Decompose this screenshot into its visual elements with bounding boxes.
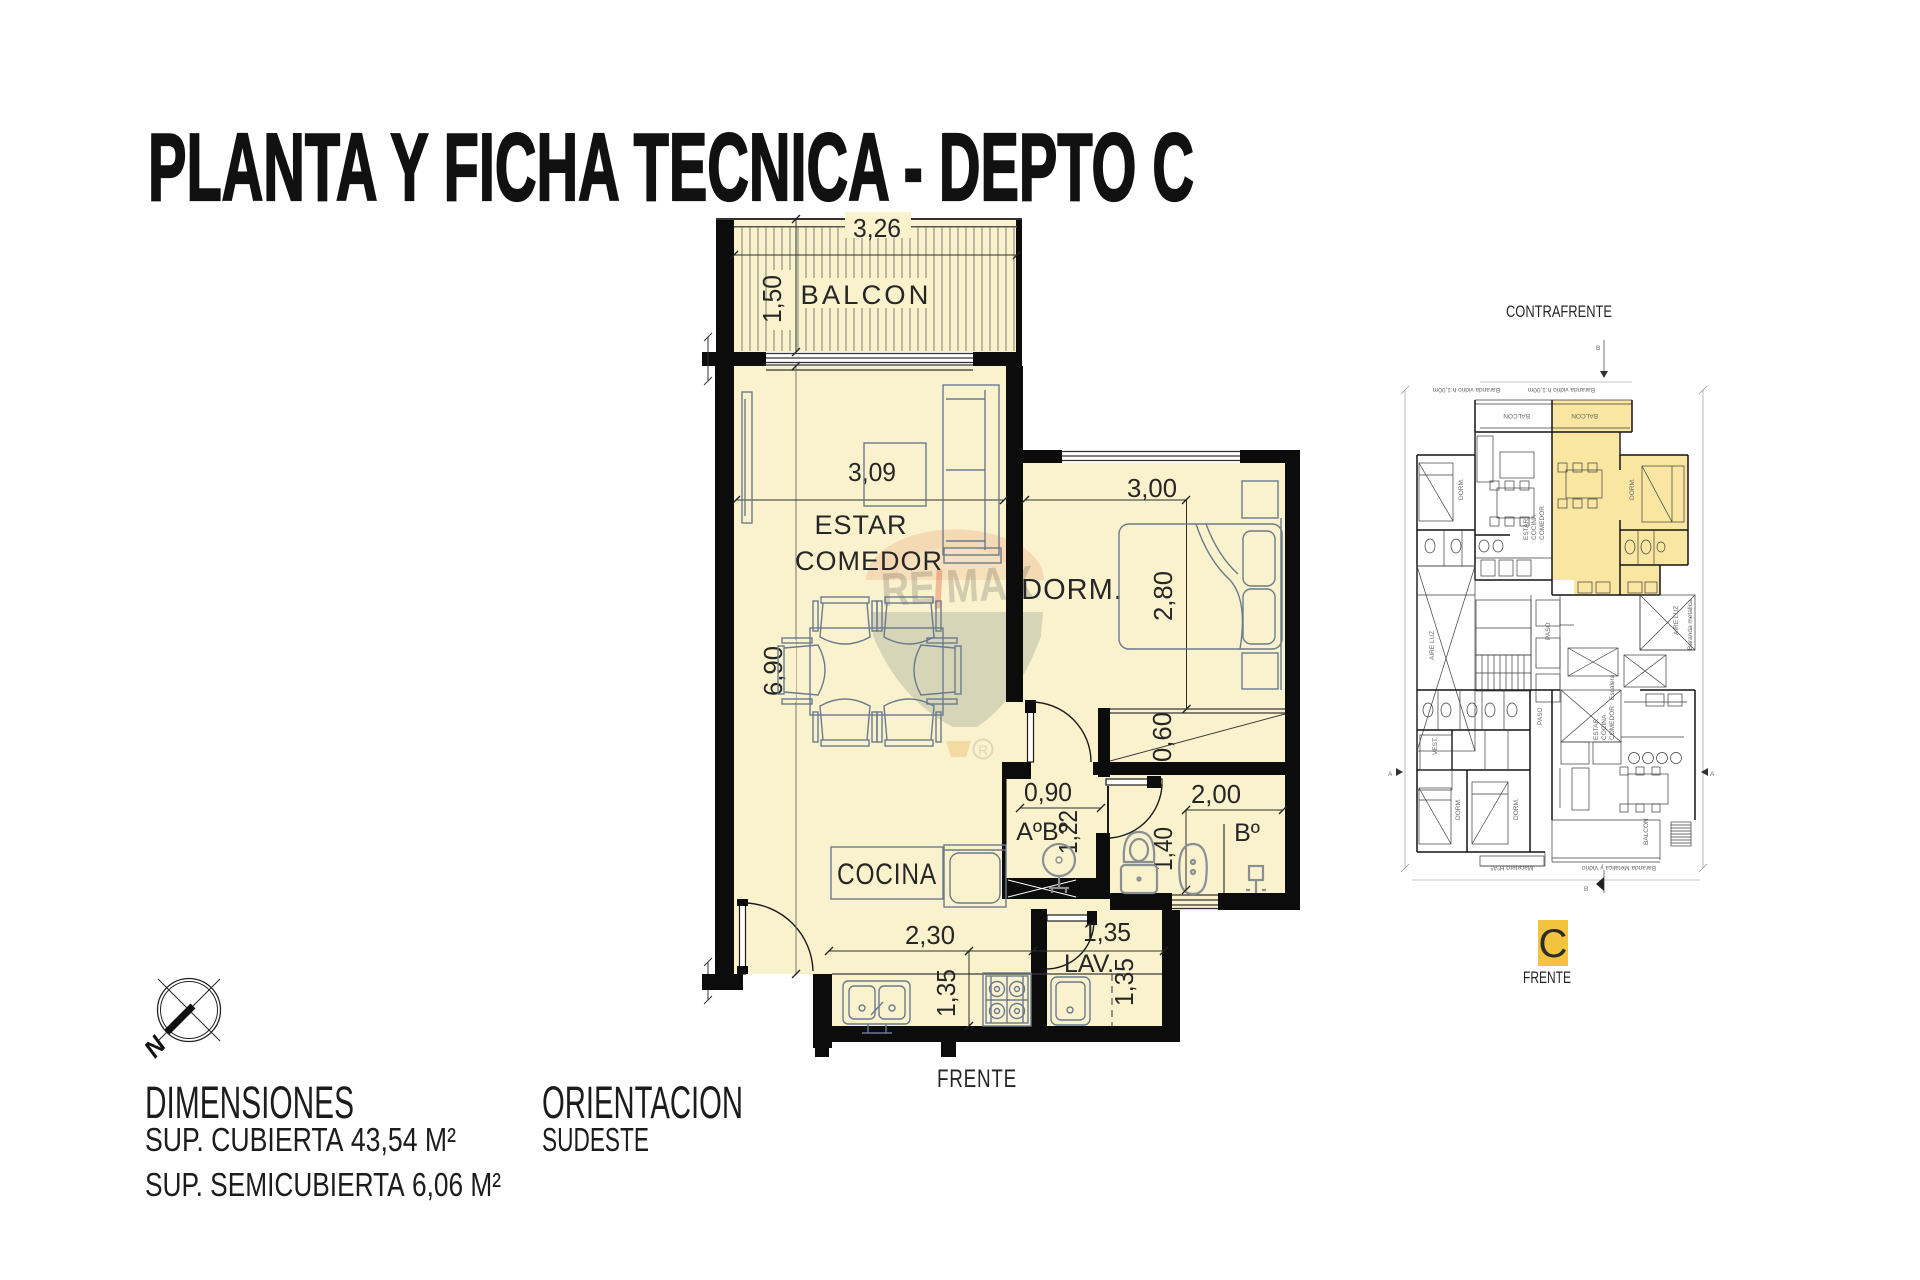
svg-text:COMEDOR: COMEDOR — [1609, 706, 1616, 740]
svg-text:2,00: 2,00 — [1191, 779, 1241, 809]
svg-text:AIRE LUZ: AIRE LUZ — [1673, 606, 1680, 635]
svg-text:SUP. CUBIERTA 43,54 M²: SUP. CUBIERTA 43,54 M² — [145, 1121, 456, 1158]
svg-text:0,90: 0,90 — [1024, 777, 1072, 807]
svg-text:Macetero HºAº: Macetero HºAº — [1490, 864, 1533, 871]
svg-text:3,09: 3,09 — [848, 457, 896, 487]
svg-text:A: A — [1388, 771, 1393, 778]
svg-text:2,80: 2,80 — [1148, 571, 1178, 621]
svg-text:FRENTE: FRENTE — [937, 1065, 1017, 1093]
svg-text:DORM.: DORM. — [1458, 478, 1465, 500]
svg-text:AIRE LUZ: AIRE LUZ — [1429, 631, 1436, 660]
svg-text:1,35: 1,35 — [1083, 917, 1131, 947]
svg-text:Escalera: Escalera — [1609, 674, 1616, 700]
svg-text:COMEDOR: COMEDOR — [1539, 506, 1546, 540]
svg-text:2,30: 2,30 — [905, 920, 955, 950]
svg-text:B: B — [1584, 886, 1588, 893]
svg-text:DORM.: DORM. — [1021, 574, 1123, 606]
svg-text:3,26: 3,26 — [853, 213, 901, 243]
svg-text:B: B — [1596, 345, 1600, 352]
svg-text:R: R — [978, 742, 988, 758]
svg-text:COCINA: COCINA — [837, 858, 937, 891]
svg-text:1,35: 1,35 — [931, 969, 961, 1017]
svg-text:ESTAR: ESTAR — [814, 510, 907, 540]
svg-text:DORM.: DORM. — [1629, 478, 1636, 500]
svg-text:Baranda vidrio h:1,00m: Baranda vidrio h:1,00m — [1528, 386, 1595, 393]
svg-text:Baranda metalica: Baranda metalica — [1687, 599, 1694, 650]
svg-text:1,50: 1,50 — [757, 275, 787, 323]
svg-text:ESTAR: ESTAR — [1593, 719, 1600, 740]
svg-text:SUP. SEMICUBIERTA 6,06 M²: SUP. SEMICUBIERTA 6,06 M² — [145, 1166, 501, 1203]
svg-text:0,60: 0,60 — [1147, 712, 1177, 762]
svg-text:ESTAR: ESTAR — [1523, 519, 1530, 540]
svg-text:Baranda vidrio h:1,00m: Baranda vidrio h:1,00m — [1433, 386, 1500, 393]
svg-text:BALCON: BALCON — [801, 280, 932, 310]
svg-text:BALCON: BALCON — [1643, 818, 1650, 845]
svg-text:COCINA: COCINA — [1601, 714, 1608, 740]
svg-text:PLANTA Y FICHA TECNICA - DEPTO: PLANTA Y FICHA TECNICA - DEPTO C — [148, 114, 1194, 221]
svg-text:COMEDOR: COMEDOR — [795, 546, 943, 576]
svg-text:DORM.: DORM. — [1455, 798, 1462, 820]
svg-text:A: A — [1710, 771, 1715, 778]
svg-text:N: N — [139, 1030, 173, 1063]
svg-text:LAV.: LAV. — [1064, 950, 1114, 978]
svg-text:1,35: 1,35 — [1109, 958, 1139, 1006]
svg-text:Baranda Metalica y Vidrio: Baranda Metalica y Vidrio — [1582, 864, 1656, 871]
svg-text:PASO: PASO — [1545, 622, 1552, 640]
svg-text:PASO: PASO — [1537, 707, 1544, 725]
svg-text:FRENTE: FRENTE — [1523, 968, 1571, 987]
svg-text:DORM.: DORM. — [1513, 798, 1520, 820]
svg-text:3,00: 3,00 — [1127, 473, 1177, 503]
svg-text:SUDESTE: SUDESTE — [542, 1121, 649, 1158]
svg-text:VEST.: VEST. — [1432, 737, 1439, 755]
svg-text:Bº: Bº — [1234, 819, 1260, 847]
svg-text:BALCON: BALCON — [1571, 412, 1598, 419]
svg-text:C: C — [1539, 922, 1568, 966]
svg-text:CONTRAFRENTE: CONTRAFRENTE — [1506, 302, 1612, 321]
svg-text:BALCON: BALCON — [1503, 412, 1530, 419]
svg-text:COCINA: COCINA — [1531, 514, 1538, 540]
